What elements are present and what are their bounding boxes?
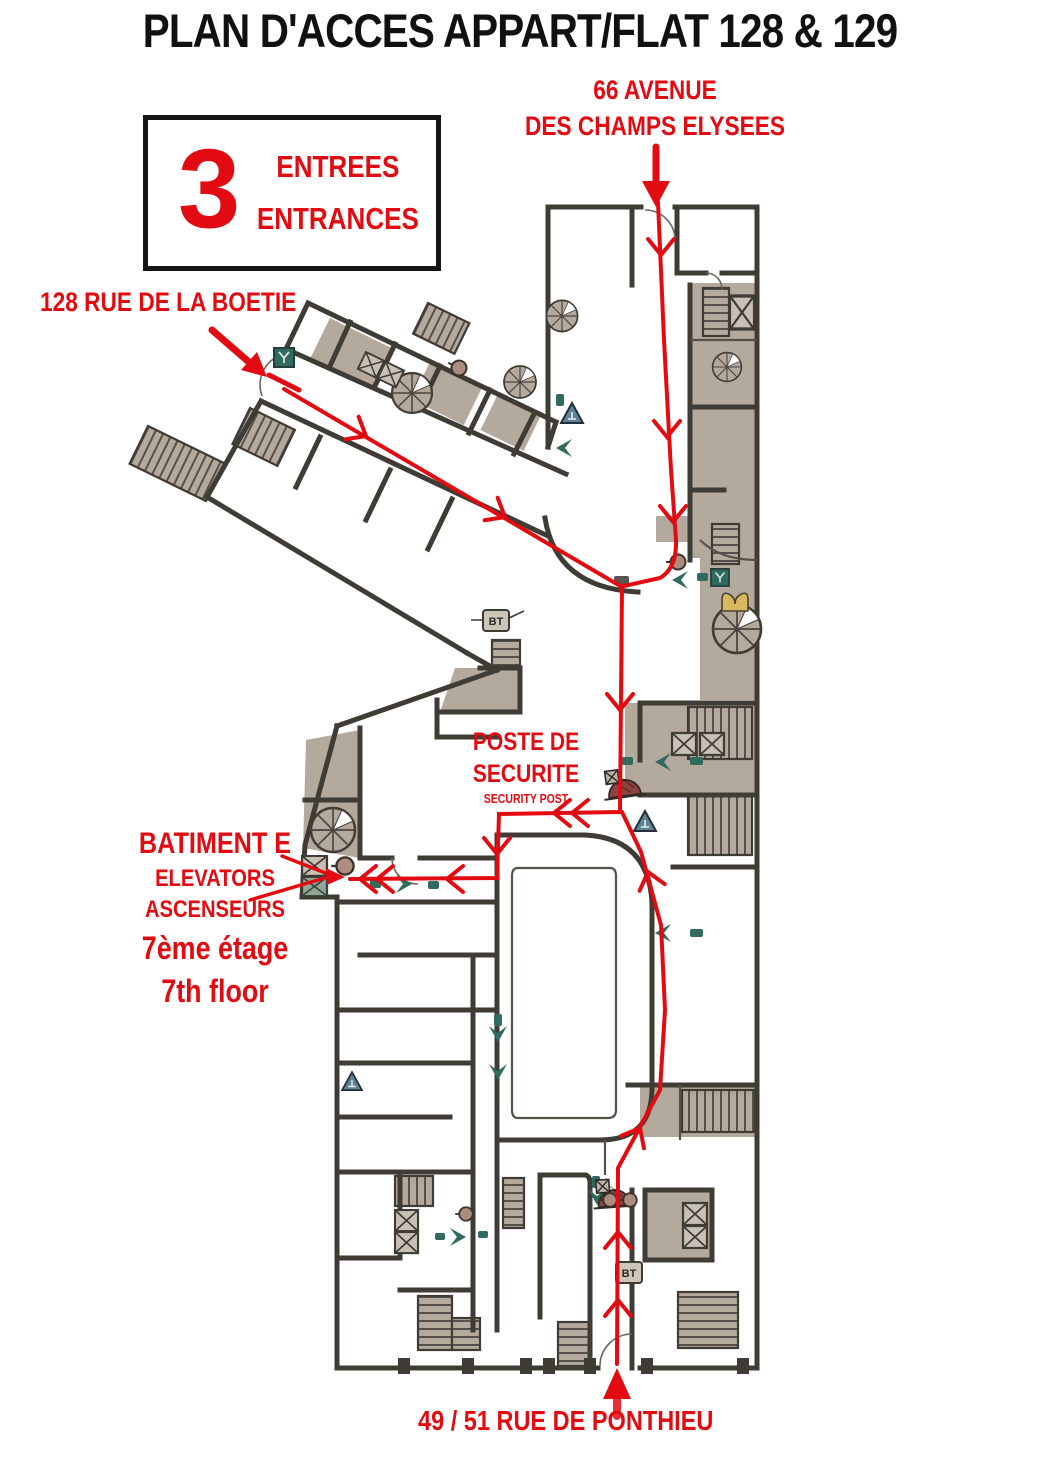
label-floor-fr: 7ème étage — [118, 931, 311, 966]
entrance-words: ENTREES ENTRANCES — [256, 149, 420, 237]
label-elevators: ELEVATORS — [118, 866, 311, 892]
bt-label: BT — [489, 616, 504, 628]
bt-label: BT — [622, 1268, 637, 1280]
entrances-box: 3 ENTREES ENTRANCES — [143, 115, 441, 271]
tech-box-icon — [274, 348, 729, 586]
entrances-en: ENTRANCES — [256, 201, 420, 237]
label-rue-de-la-boetie: 128 RUE DE LA BOETIE — [40, 288, 275, 317]
label-poste-line3: SECURITY POST — [444, 793, 609, 807]
label-batiment-e: BATIMENT E ELEVATORS ASCENSEURS 7ème éta… — [118, 828, 311, 1008]
label-batiment-name: BATIMENT E — [118, 828, 311, 860]
label-ascenseurs: ASCENSEURS — [118, 897, 311, 923]
label-champs-line1: 66 AVENUE — [500, 76, 811, 105]
scanned-access-plan: BT BT — [0, 0, 1040, 1476]
label-champs-elysees: 66 AVENUE DES CHAMPS ELYSEES — [500, 76, 811, 148]
page-title: PLAN D'ACCES APPART/FLAT 128 & 129 — [73, 6, 967, 57]
label-floor-en: 7th floor — [118, 974, 311, 1009]
route-main-down — [620, 586, 622, 812]
entrances-fr: ENTREES — [256, 149, 420, 185]
entrance-count: 3 — [178, 141, 240, 236]
label-rue-de-ponthieu: 49 / 51 RUE DE PONTHIEU — [418, 1406, 712, 1436]
label-security-post: POSTE DE SECURITE SECURITY POST — [444, 729, 609, 807]
boetie-entry-arrow — [212, 330, 267, 377]
label-champs-line2: DES CHAMPS ELYSEES — [500, 112, 811, 141]
champs-entry-arrow — [642, 147, 670, 207]
label-poste-line1: POSTE DE — [444, 729, 609, 756]
label-poste-line2: SECURITE — [444, 761, 609, 788]
